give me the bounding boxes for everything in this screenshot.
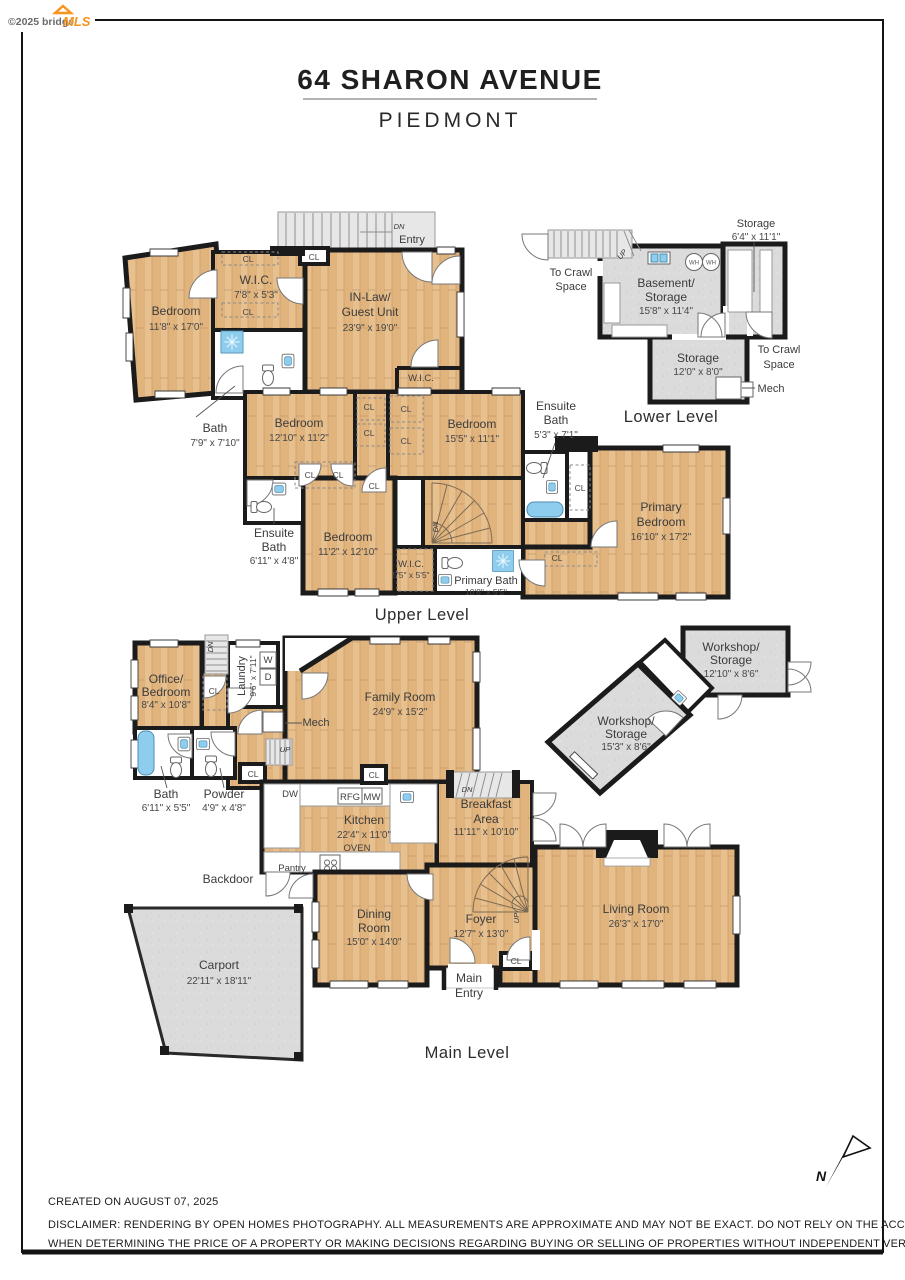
- room-dims-label: 15'3" x 8'6": [601, 742, 651, 753]
- north-label: N: [816, 1168, 827, 1184]
- sink-icon: [439, 574, 452, 585]
- room-name-label: Foyer: [466, 912, 497, 926]
- stair-dn-label: DN: [394, 222, 405, 231]
- room-name-label: Carport: [199, 958, 240, 972]
- room-dims-label: 16'10" x 17'2": [631, 532, 692, 543]
- room-storage-s: Storage 12'0" x 8'0": [673, 351, 723, 378]
- closet-label: CL: [243, 307, 254, 317]
- closet-label: CL: [401, 404, 412, 414]
- room-dims-label: 15'8" x 11'4": [639, 306, 694, 317]
- footer: CREATED ON AUGUST 07, 2025 DISCLAIMER: R…: [48, 1196, 905, 1250]
- room-dims-label: 6'11" x 5'5": [142, 803, 191, 814]
- room-workshop-ne: Workshop/ Storage 12'10" x 8'6": [702, 640, 760, 680]
- primary-hall-floor: [523, 520, 590, 547]
- room-name-label: Ensuite: [254, 526, 294, 540]
- room-name-label: Living Room: [603, 902, 670, 916]
- room-name-label: IN-Law/: [349, 290, 391, 304]
- washer-detail: [660, 254, 667, 262]
- toilet-icon: [171, 757, 182, 778]
- sink-icon: [272, 483, 286, 495]
- room-name-label2: Bath: [544, 413, 569, 427]
- washer-label: W: [264, 655, 273, 666]
- closet-label: CL: [305, 470, 316, 480]
- sink-icon: [401, 791, 414, 802]
- compass-icon: N: [816, 1136, 870, 1187]
- disclaimer-line1: DISCLAIMER: RENDERING BY OPEN HOMES PHOT…: [48, 1219, 905, 1231]
- stair-dn-label: DN: [206, 641, 215, 652]
- room-name-label: Breakfast: [461, 797, 512, 811]
- room-dims-label: 7'8" x 5'3": [234, 290, 278, 301]
- hearth: [604, 858, 650, 866]
- room-name-label: Office/: [149, 672, 184, 686]
- closet-label: CL: [401, 436, 412, 446]
- room-living-floor: [535, 847, 737, 985]
- closet-label: CL: [575, 483, 586, 493]
- room-dims-label: 22'11" x 18'11": [187, 976, 252, 987]
- shelf: [728, 250, 752, 312]
- room-name-label: Workshop/: [702, 640, 760, 654]
- closet-label: CL: [248, 769, 259, 779]
- room-name-label: Primary: [640, 500, 681, 514]
- crawl-space-label-right: To Crawl Space: [758, 344, 801, 371]
- room-name-label: Dining: [357, 907, 391, 921]
- room-dims-label: 8'4" x 10'8": [141, 700, 191, 711]
- crawl-space-label-left: To Crawl Space: [550, 267, 593, 293]
- mech-unit-icon: [716, 377, 741, 399]
- room-name-label: Kitchen: [344, 813, 384, 827]
- room-name-label2: Guest Unit: [342, 305, 399, 319]
- stair-up-label: UP: [280, 745, 290, 754]
- room-ensuite-w: Ensuite Bath 6'11" x 4'8": [250, 526, 299, 567]
- room-dims-label: 11'2" x 12'10": [318, 547, 378, 558]
- room-dims-label: 12'10" x 11'2": [269, 433, 329, 444]
- room-name-label: Storage: [737, 218, 776, 230]
- room-powder: Powder 4'9" x 4'8": [202, 787, 246, 814]
- room-dims-label: 9'6" x 7'11": [248, 655, 258, 696]
- main-level-plan: Office/ Bedroom 8'4" x 10'8" Laundry 9'6…: [124, 628, 811, 1062]
- page-title: 64 SHARON AVENUE: [297, 64, 603, 95]
- room-bath-nw: Bath 7'9" x 7'10": [190, 421, 240, 449]
- shelf: [604, 283, 620, 323]
- room-name-label: Family Room: [365, 690, 436, 704]
- room-name-label: Laundry: [236, 656, 248, 696]
- room-name-label: Bedroom: [324, 530, 373, 544]
- wh-label: WH: [689, 261, 699, 267]
- room-name-label: Bedroom: [448, 417, 497, 431]
- mech-unit-icon: [263, 712, 283, 732]
- room-dims-label: 4'9" x 4'8": [202, 803, 246, 814]
- closet-label: CL: [243, 254, 254, 264]
- bathtub-icon: [138, 731, 154, 775]
- title-block: 64 SHARON AVENUE PIEDMONT: [297, 64, 603, 132]
- entry-label: Entry: [399, 234, 425, 246]
- shelf: [612, 325, 667, 337]
- room-inlaw: IN-Law/ Guest Unit 23'9" x 19'0": [342, 290, 399, 334]
- brand-logo: ©2025 bridge MLS: [3, 6, 95, 32]
- room-dims-label: 12'0" x 8'0": [673, 367, 723, 378]
- room-dims-label: 6'11" x 4'8": [250, 556, 299, 567]
- room-name-label2: Room: [358, 921, 390, 935]
- room-dims-label: 11'11" x 10'10": [454, 827, 519, 838]
- room-dims-label: 11'8" x 17'0": [149, 322, 204, 333]
- closet-label: CL: [209, 686, 220, 696]
- room-ensuite-e: Ensuite Bath 5'3" x 7'1": [534, 399, 578, 441]
- room-workshop-sw: Workshop/ Storage 15'3" x 8'6": [597, 714, 655, 753]
- pantry-label: Pantry: [278, 863, 306, 874]
- closet-label: CL: [369, 770, 380, 780]
- room-dims-label: 5'3" x 7'1": [534, 430, 578, 441]
- room-dims-label: 12'10" x 8'6": [704, 669, 759, 680]
- sink-icon: [178, 737, 190, 751]
- main-entry-line2: Entry: [455, 986, 483, 1000]
- room-name-label2: Bedroom: [142, 685, 191, 699]
- lower-level-plan: WH WH Storage 6'4" x 11'1" Basement/ Sto…: [522, 218, 800, 426]
- closet-label: CL: [552, 553, 563, 563]
- refrigerator-label: RFG: [340, 792, 360, 803]
- room-name-label: Ensuite: [536, 399, 576, 413]
- backdoor-label: Backdoor: [203, 872, 254, 886]
- stair-up-label: UP: [512, 913, 521, 923]
- room-dims-label: 10'8" x 5'5": [465, 587, 507, 597]
- room-name-label2: Bath: [262, 540, 287, 554]
- watermark-brand: MLS: [63, 14, 91, 29]
- closet-label: CL: [333, 470, 344, 480]
- crawl-line1: To Crawl: [550, 267, 593, 279]
- mech-unit-icon: [741, 382, 753, 397]
- closet-label: CL: [364, 428, 375, 438]
- room-name-label: Bath: [203, 421, 228, 435]
- room-name-label: W.I.C.: [398, 559, 424, 570]
- toilet-icon: [527, 463, 548, 474]
- sink-icon: [197, 738, 210, 749]
- mech-label: Mech: [303, 717, 330, 729]
- toilet-icon: [442, 558, 463, 569]
- closet-label: CL: [511, 956, 522, 966]
- room-basement: Basement/ Storage 15'8" x 11'4": [637, 276, 695, 317]
- room-dims-label: 7'9" x 7'10": [190, 438, 240, 449]
- closet-label: CL: [369, 481, 380, 491]
- room-dims-label: 12'7" x 13'0": [454, 929, 509, 940]
- crawl-line1: To Crawl: [758, 344, 801, 356]
- toilet-icon: [251, 502, 272, 513]
- sink-icon: [282, 354, 294, 368]
- closet-label: CL: [364, 402, 375, 412]
- compass-needle-light: [843, 1136, 870, 1157]
- upper-level-label: Upper Level: [375, 606, 469, 624]
- microwave-label: MW: [364, 792, 381, 803]
- main-entry-label: Main Entry: [455, 971, 483, 1000]
- toilet-icon: [263, 365, 274, 386]
- room-name-label: Storage: [677, 351, 719, 365]
- room-dims-label: 15'0" x 14'0": [347, 937, 402, 948]
- room-dims-label: 5'5" x 5'5": [392, 570, 429, 580]
- room-name-label: W.I.C.: [240, 273, 273, 287]
- lower-level-label: Lower Level: [624, 408, 718, 426]
- floor-plan-page: ©2025 bridge MLS 64 SHARON AVENUE PIEDMO…: [0, 0, 905, 1280]
- room-dims-label: 6'4" x 11'1": [732, 232, 781, 243]
- room-dims-label: 23'9" x 19'0": [343, 323, 398, 334]
- floor-plan-canvas: ©2025 bridge MLS 64 SHARON AVENUE PIEDMO…: [0, 0, 905, 1280]
- crawl-line2: Space: [763, 359, 794, 371]
- room-name-label: Primary Bath: [454, 575, 518, 587]
- room-name-label: Bedroom: [152, 304, 201, 318]
- room-name-label2: Area: [473, 812, 499, 826]
- room-name-label2: Storage: [710, 653, 752, 667]
- main-entry-line1: Main: [456, 971, 482, 985]
- dishwasher-label: DW: [282, 789, 298, 800]
- washer-detail: [651, 254, 658, 262]
- crawl-line2: Space: [555, 281, 586, 293]
- stair-dn-label: DN: [462, 785, 473, 794]
- room-name-label: Powder: [204, 787, 245, 801]
- room-bath: Bath 6'11" x 5'5": [142, 787, 191, 814]
- room-name-label: Basement/: [637, 276, 695, 290]
- room-name-label2: Storage: [605, 727, 647, 741]
- stair-dn-label: DN: [431, 521, 440, 532]
- kitchen-counter: [300, 852, 400, 872]
- room-laundry: Laundry 9'6" x 7'11": [236, 655, 258, 696]
- dryer-label: D: [265, 672, 272, 683]
- shower-icon: [493, 551, 514, 572]
- closet-label: CL: [309, 252, 320, 262]
- room-dims-label: 15'5" x 11'1": [445, 434, 500, 445]
- shelf: [760, 250, 772, 312]
- disclaimer-line2: WHEN DETERMINING THE PRICE OF A PROPERTY…: [48, 1238, 905, 1250]
- room-name-label2: Storage: [645, 290, 687, 304]
- created-date: CREATED ON AUGUST 07, 2025: [48, 1196, 218, 1208]
- oven-label: OVEN: [344, 843, 371, 854]
- shower-icon: [221, 331, 243, 353]
- bathtub-icon: [527, 502, 563, 517]
- sink-icon: [546, 481, 557, 494]
- room-name-label: Bath: [154, 787, 179, 801]
- room-name-label: Workshop/: [597, 714, 655, 728]
- mech-label: Mech: [758, 383, 785, 395]
- main-level-label: Main Level: [425, 1044, 510, 1062]
- wh-label: WH: [706, 261, 716, 267]
- room-storage-e: Storage 6'4" x 11'1": [732, 218, 781, 243]
- wic-label: W.I.C.: [408, 373, 434, 384]
- room-dims-label: 22'4" x 11'0": [337, 830, 392, 841]
- room-dims-label: 26'3" x 17'0": [609, 919, 664, 930]
- room-name-label2: Bedroom: [637, 515, 686, 529]
- room-dims-label: 24'9" x 15'2": [373, 707, 428, 718]
- room-name-label: Bedroom: [275, 416, 324, 430]
- toilet-icon: [206, 756, 217, 777]
- page-subtitle: PIEDMONT: [379, 109, 522, 132]
